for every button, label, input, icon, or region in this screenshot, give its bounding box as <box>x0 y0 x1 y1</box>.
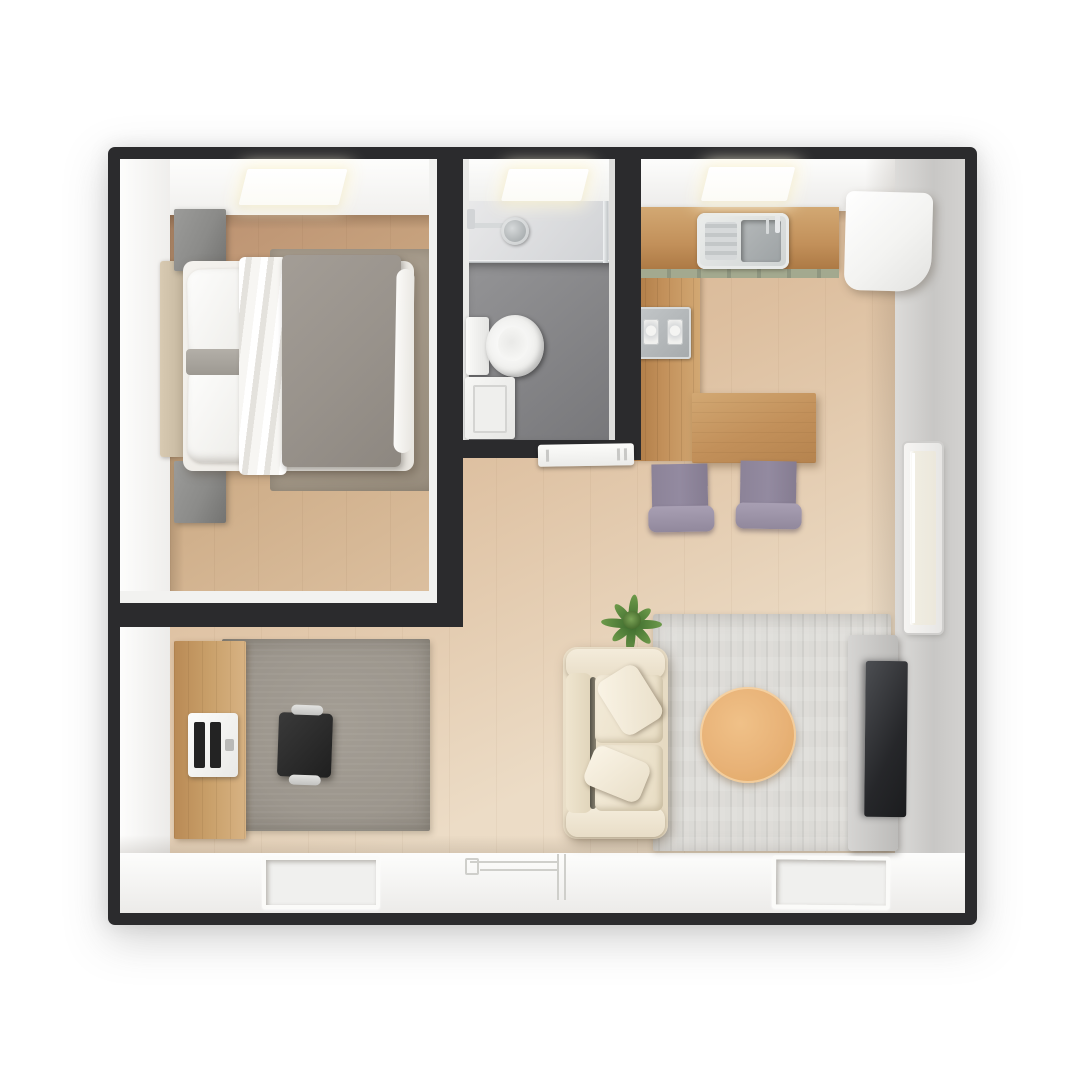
window <box>904 443 942 633</box>
burner <box>667 319 683 345</box>
shower-valve <box>467 209 475 229</box>
laptop-trackpad <box>225 739 234 751</box>
kitchen-side-counter <box>633 269 700 461</box>
entry-door-outline <box>557 854 559 900</box>
bathroom-door <box>538 443 634 467</box>
dining-chair <box>647 463 714 536</box>
shower-glass-panel <box>603 201 608 263</box>
entry-door-outline <box>480 869 557 871</box>
entry-door-hinge <box>465 858 479 875</box>
laptop-screen <box>194 722 205 768</box>
chair-back <box>651 464 708 511</box>
chair-armrest <box>291 705 323 716</box>
chair-seat <box>648 505 714 532</box>
dining-table <box>692 393 816 463</box>
round-coffee-table <box>700 687 796 783</box>
wall-face <box>120 591 437 603</box>
cooktop <box>636 307 691 359</box>
window-pane <box>910 451 936 625</box>
shower-head <box>501 217 529 245</box>
sink-drainboard <box>705 222 737 260</box>
floor-plan-canvas <box>0 0 1080 1080</box>
office-left-wall-face <box>120 602 170 853</box>
bathroom-cabinet <box>465 377 515 439</box>
bed-sheet <box>239 257 287 475</box>
office-chair <box>277 712 333 778</box>
duvet-fold <box>393 269 414 453</box>
bedroom-bathroom-wall <box>437 147 463 627</box>
toilet <box>486 315 544 377</box>
kitchen-backsplash <box>641 269 839 278</box>
floor-mat-right <box>772 855 891 909</box>
entry-door-outline <box>470 861 557 863</box>
chair-back <box>740 460 797 507</box>
apartment-floor-plan <box>108 147 977 925</box>
refrigerator <box>844 191 934 292</box>
duvet <box>282 255 401 467</box>
sofa-backrest <box>566 673 592 813</box>
bedroom-partition-wall <box>108 603 463 627</box>
kitchen-skylight <box>701 167 795 201</box>
laptop <box>188 713 238 777</box>
chair-seat <box>735 502 801 529</box>
entry-door-outline <box>564 854 566 900</box>
floor-mat-left <box>262 856 380 909</box>
wall-face <box>429 159 437 600</box>
plant-center <box>623 611 641 629</box>
tv <box>864 661 908 817</box>
kitchen-sink <box>697 213 789 269</box>
laptop-keyboard <box>210 722 221 768</box>
chair-armrest <box>289 774 321 785</box>
bedroom-skylight <box>239 169 348 205</box>
dining-chair <box>735 460 802 533</box>
potted-plant <box>602 590 662 650</box>
sofa <box>563 647 668 839</box>
bathroom-skylight <box>501 169 589 201</box>
bathroom-kitchen-wall <box>615 147 641 460</box>
sink-faucet <box>775 215 780 233</box>
burner <box>643 319 659 345</box>
shower-area <box>463 201 615 263</box>
